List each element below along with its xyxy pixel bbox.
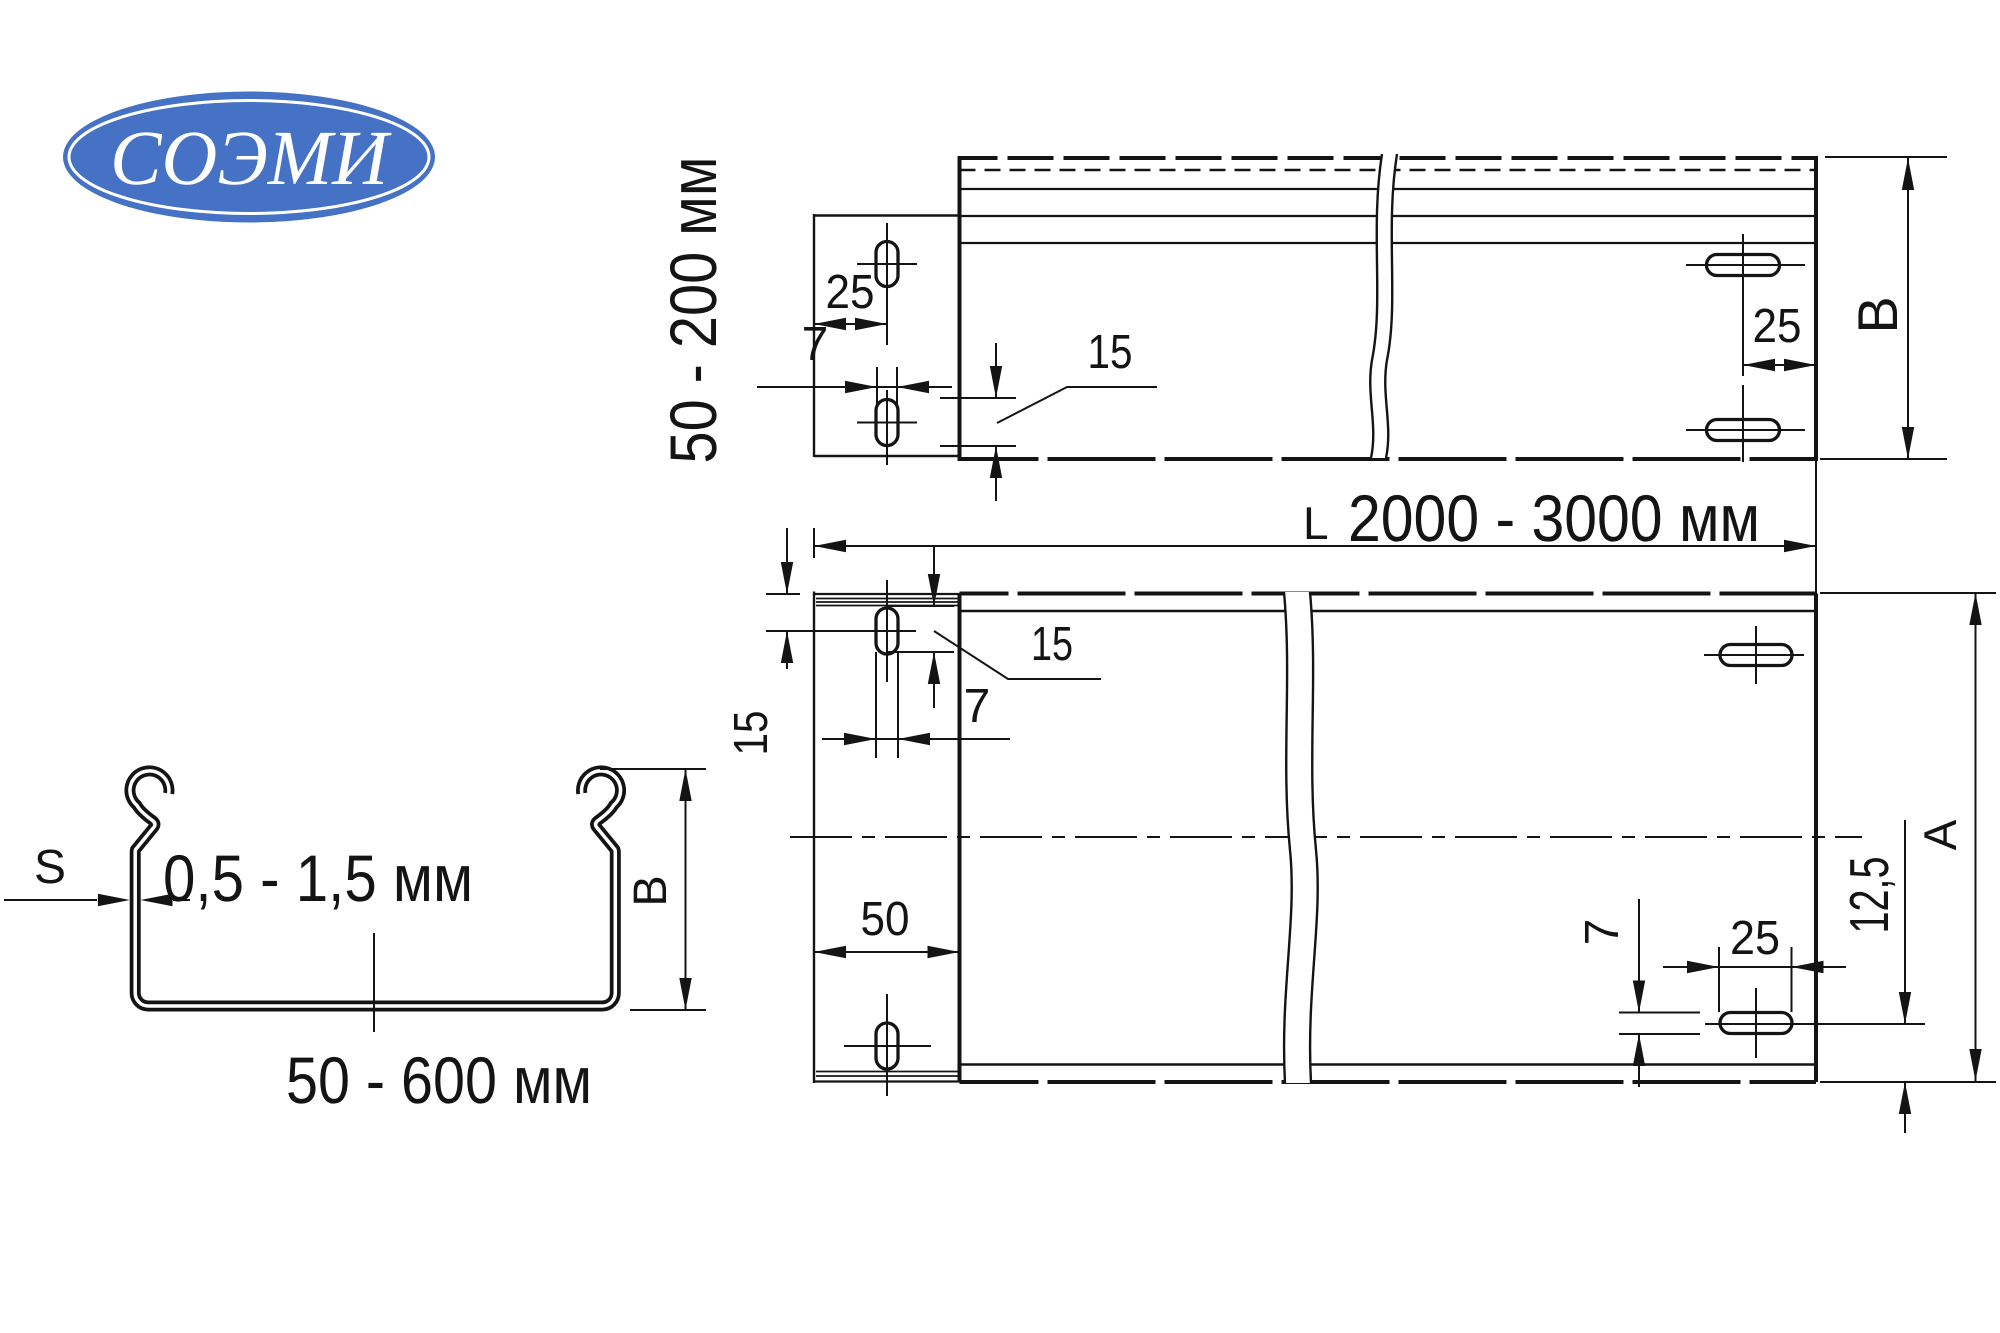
svg-text:15: 15 bbox=[1088, 326, 1133, 379]
svg-text:СОЭМИ: СОЭМИ bbox=[110, 114, 392, 201]
svg-text:15: 15 bbox=[725, 711, 778, 756]
svg-text:25: 25 bbox=[1753, 300, 1802, 353]
svg-text:50: 50 bbox=[861, 893, 910, 946]
svg-text:L: L bbox=[1303, 497, 1329, 549]
svg-text:B: B bbox=[1846, 296, 1909, 333]
svg-text:25: 25 bbox=[1730, 912, 1780, 965]
svg-text:50 - 200 мм: 50 - 200 мм bbox=[656, 157, 730, 464]
svg-text:S: S bbox=[34, 841, 66, 894]
svg-text:A: A bbox=[1914, 819, 1966, 850]
svg-text:B: B bbox=[623, 875, 676, 906]
svg-text:50 - 600 мм: 50 - 600 мм bbox=[286, 1043, 592, 1117]
svg-text:25: 25 bbox=[826, 266, 875, 319]
svg-text:7: 7 bbox=[964, 680, 991, 733]
svg-text:7: 7 bbox=[1576, 919, 1629, 946]
svg-text:15: 15 bbox=[1031, 618, 1073, 671]
svg-text:2000 - 3000 мм: 2000 - 3000 мм bbox=[1348, 481, 1760, 555]
svg-text:12,5: 12,5 bbox=[1838, 857, 1900, 934]
svg-text:0,5 - 1,5 мм: 0,5 - 1,5 мм bbox=[163, 841, 473, 915]
svg-text:7: 7 bbox=[802, 318, 829, 371]
